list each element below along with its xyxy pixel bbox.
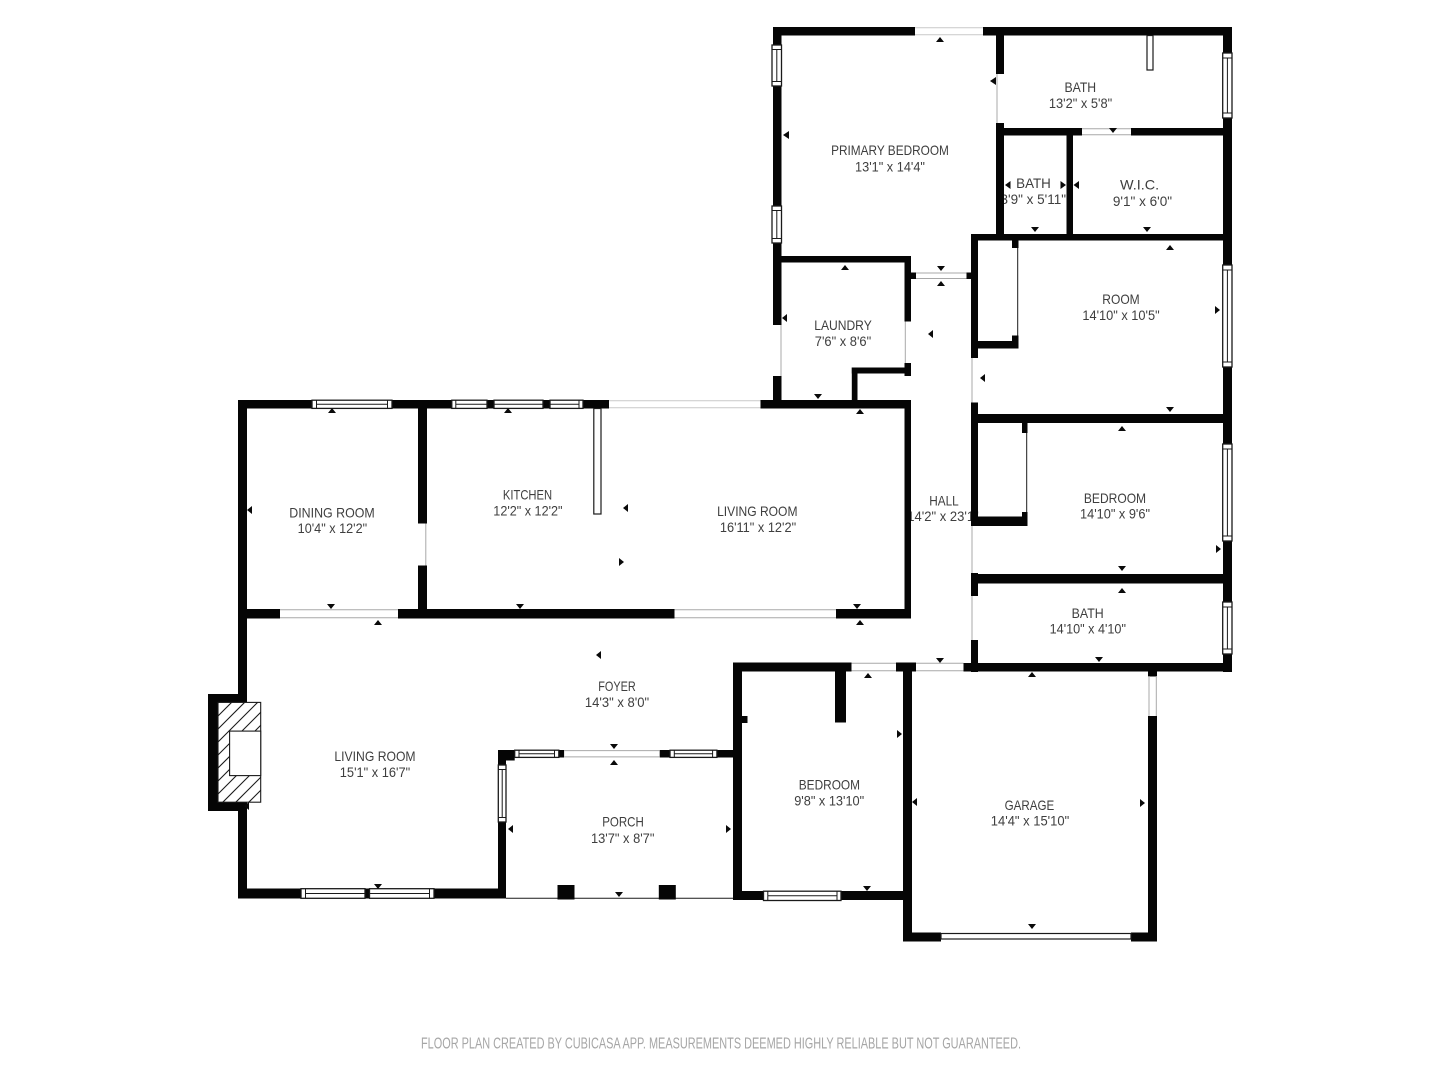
svg-text:14'4" x 15'10": 14'4" x 15'10"	[991, 813, 1069, 829]
svg-text:9'8" x 13'10": 9'8" x 13'10"	[794, 793, 864, 809]
svg-text:16'11" x 12'2": 16'11" x 12'2"	[720, 519, 796, 535]
svg-text:LIVING ROOM: LIVING ROOM	[717, 503, 797, 519]
svg-text:13'2" x 5'8": 13'2" x 5'8"	[1049, 95, 1112, 111]
svg-text:15'1" x 16'7": 15'1" x 16'7"	[340, 764, 410, 780]
svg-text:FOYER: FOYER	[598, 678, 636, 694]
svg-text:W.I.C.: W.I.C.	[1120, 177, 1159, 193]
svg-text:BATH: BATH	[1064, 79, 1096, 95]
svg-text:14'10" x 4'10": 14'10" x 4'10"	[1050, 621, 1126, 637]
svg-text:14'10" x 10'5": 14'10" x 10'5"	[1082, 307, 1159, 323]
svg-text:PRIMARY BEDROOM: PRIMARY BEDROOM	[831, 142, 949, 158]
svg-text:9'1" x 6'0": 9'1" x 6'0"	[1113, 193, 1172, 209]
svg-text:HALL: HALL	[929, 493, 959, 509]
svg-text:ROOM: ROOM	[1102, 291, 1139, 307]
svg-text:DINING ROOM: DINING ROOM	[289, 505, 375, 521]
svg-text:7'6" x 8'6": 7'6" x 8'6"	[815, 333, 871, 349]
svg-text:GARAGE: GARAGE	[1005, 797, 1055, 813]
svg-text:14'2" x 23'1": 14'2" x 23'1"	[907, 508, 978, 524]
svg-text:13'7" x 8'7": 13'7" x 8'7"	[591, 830, 654, 846]
svg-text:BATH: BATH	[1016, 175, 1051, 191]
svg-text:12'2" x 12'2": 12'2" x 12'2"	[493, 503, 562, 519]
svg-text:KITCHEN: KITCHEN	[503, 487, 552, 503]
svg-text:BEDROOM: BEDROOM	[799, 777, 860, 793]
svg-text:FLOOR PLAN CREATED BY CUBICASA: FLOOR PLAN CREATED BY CUBICASA APP. MEAS…	[421, 1036, 1021, 1053]
svg-text:LAUNDRY: LAUNDRY	[814, 317, 872, 333]
svg-text:13'1" x 14'4": 13'1" x 14'4"	[855, 159, 925, 175]
svg-text:LIVING ROOM: LIVING ROOM	[334, 748, 415, 764]
svg-text:14'10" x 9'6": 14'10" x 9'6"	[1080, 506, 1150, 522]
svg-text:14'3" x 8'0": 14'3" x 8'0"	[585, 694, 649, 710]
svg-text:10'4" x 12'2": 10'4" x 12'2"	[298, 520, 368, 536]
svg-text:BEDROOM: BEDROOM	[1084, 490, 1146, 506]
svg-text:3'9" x 5'11": 3'9" x 5'11"	[1001, 191, 1067, 207]
svg-text:PORCH: PORCH	[602, 814, 644, 830]
svg-text:BATH: BATH	[1072, 605, 1104, 621]
